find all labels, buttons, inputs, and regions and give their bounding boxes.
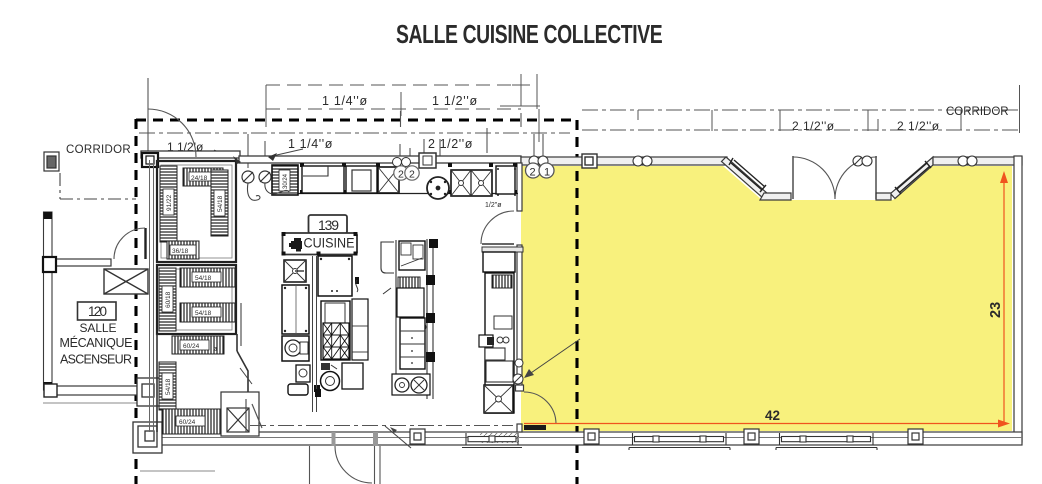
svg-text:24/18: 24/18: [191, 175, 208, 182]
svg-text:120: 120: [88, 304, 107, 319]
svg-text:54/18: 54/18: [165, 378, 172, 395]
svg-text:1 1/4''ø: 1 1/4''ø: [322, 94, 368, 108]
svg-text:60/18: 60/18: [165, 291, 172, 308]
svg-text:36/18: 36/18: [172, 248, 189, 255]
svg-text:1: 1: [544, 167, 550, 179]
svg-text:2 1/2''ø: 2 1/2''ø: [428, 137, 473, 151]
svg-text:2 1/2''ø: 2 1/2''ø: [897, 119, 940, 133]
svg-text:60/24: 60/24: [183, 343, 200, 350]
svg-text:SALLE CUISINE COLLECTIVE: SALLE CUISINE COLLECTIVE: [396, 19, 662, 48]
svg-text:ASCENSEUR: ASCENSEUR: [60, 353, 132, 367]
svg-text:91/22: 91/22: [166, 194, 173, 211]
svg-text:1 1/4''ø: 1 1/4''ø: [288, 137, 333, 151]
svg-text:54/18: 54/18: [195, 275, 212, 282]
svg-text:42: 42: [765, 408, 780, 423]
svg-text:23: 23: [988, 302, 1004, 318]
svg-text:139: 139: [318, 217, 339, 233]
svg-text:2: 2: [409, 169, 415, 181]
svg-text:54/18: 54/18: [195, 310, 212, 317]
svg-text:MÉCANIQUE: MÉCANIQUE: [60, 335, 133, 350]
svg-text:54/18: 54/18: [217, 195, 224, 212]
svg-text:1/2"ø: 1/2"ø: [485, 202, 502, 209]
svg-text:CORRIDOR: CORRIDOR: [946, 106, 1009, 118]
svg-text:SALLE: SALLE: [80, 321, 117, 335]
svg-text:2: 2: [530, 167, 536, 179]
svg-text:ø: ø: [213, 346, 218, 353]
svg-text:2 1/2''ø: 2 1/2''ø: [792, 119, 835, 133]
svg-text:60/24: 60/24: [179, 419, 196, 426]
svg-text:CUISINE: CUISINE: [304, 235, 355, 251]
svg-text:1 1/2''ø: 1 1/2''ø: [432, 94, 478, 108]
svg-text:CORRIDOR: CORRIDOR: [66, 144, 131, 156]
svg-text:30/24: 30/24: [283, 173, 289, 189]
svg-text:2: 2: [398, 169, 404, 181]
